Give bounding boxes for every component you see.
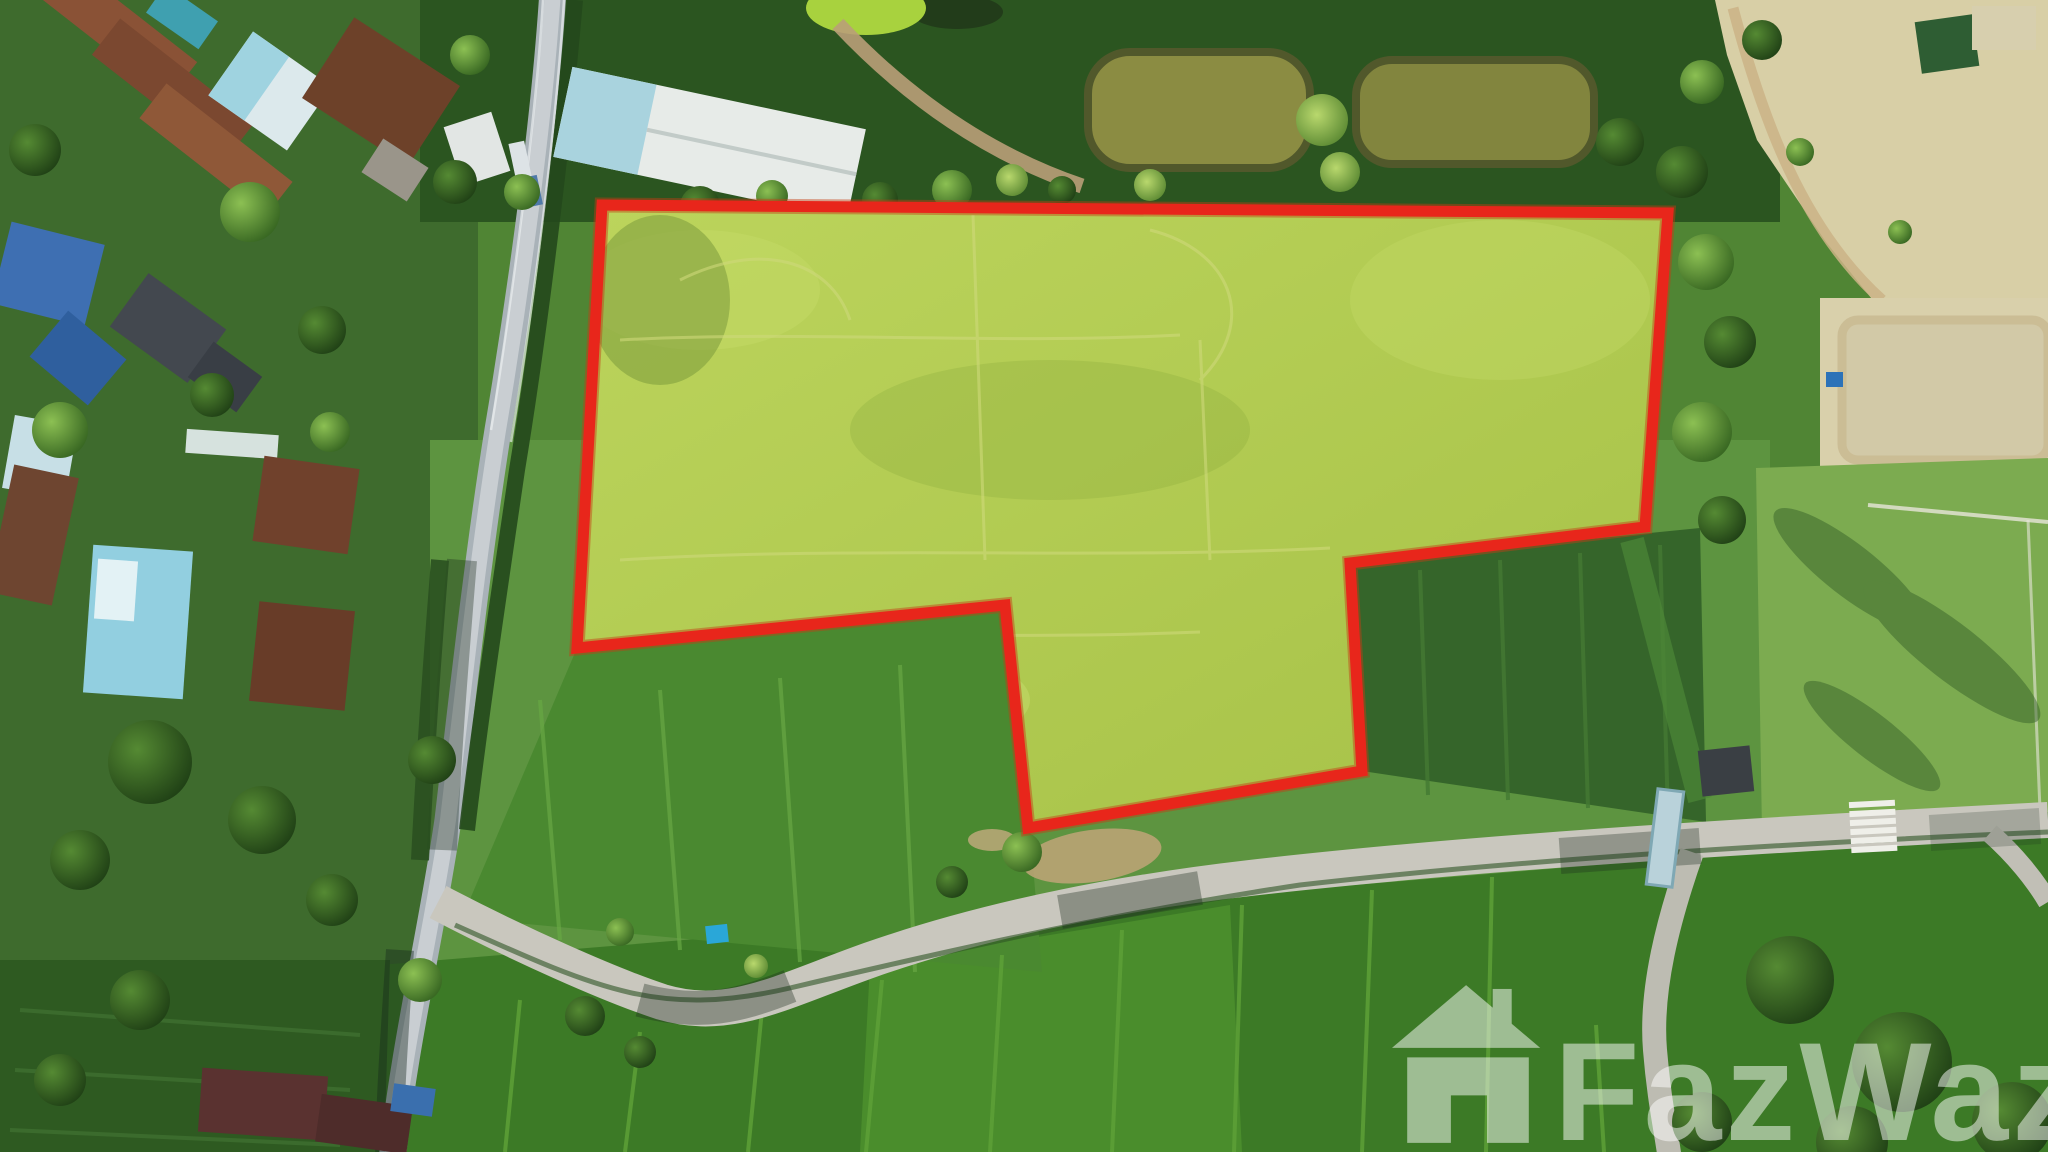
- tree: [1596, 118, 1644, 166]
- blue-tarp: [390, 1083, 435, 1117]
- tree: [1002, 832, 1042, 872]
- tree: [190, 373, 234, 417]
- tree: [1672, 1092, 1732, 1152]
- tree: [32, 402, 88, 458]
- tree: [1672, 402, 1732, 462]
- blue-tarp: [1826, 372, 1843, 387]
- aerial-photo: FazWaz: [0, 0, 2048, 1152]
- tree: [744, 954, 768, 978]
- tree: [606, 918, 634, 946]
- tree: [1698, 496, 1746, 544]
- tree: [408, 736, 456, 784]
- tree: [9, 124, 61, 176]
- roof: [252, 456, 359, 555]
- tree: [1746, 936, 1834, 1024]
- tree: [220, 182, 280, 242]
- tree: [1704, 316, 1756, 368]
- tree: [936, 866, 968, 898]
- tree: [565, 996, 605, 1036]
- tree: [1852, 1012, 1952, 1112]
- palm-tree: [1296, 94, 1348, 146]
- tree: [50, 830, 110, 890]
- tree: [1656, 146, 1708, 198]
- tree: [398, 958, 442, 1002]
- tree: [108, 720, 192, 804]
- olive-pond-left: [1088, 52, 1310, 168]
- tree: [34, 1054, 86, 1106]
- palm-tree: [1320, 152, 1360, 192]
- palm-tree: [996, 164, 1028, 196]
- tree: [228, 786, 296, 854]
- tree: [306, 874, 358, 926]
- tree: [1048, 176, 1076, 204]
- tree: [1742, 20, 1782, 60]
- deck: [1972, 6, 2036, 50]
- tree: [450, 35, 490, 75]
- tree: [624, 1036, 656, 1068]
- hut-roof: [1698, 745, 1755, 796]
- cyan-roof-highlight: [94, 559, 138, 622]
- palm-tree: [1134, 169, 1166, 201]
- roof: [198, 1068, 328, 1141]
- tree: [310, 412, 350, 452]
- tree: [433, 160, 477, 204]
- shrub: [1786, 138, 1814, 166]
- tree: [1680, 60, 1724, 104]
- blue-sign: [705, 924, 729, 944]
- tree: [110, 970, 170, 1030]
- olive-pond-right: [1356, 60, 1594, 164]
- green-roof: [1915, 14, 1980, 74]
- roof: [249, 601, 355, 710]
- milky-pond: [1842, 320, 2048, 460]
- tree: [1678, 234, 1734, 290]
- tree: [504, 174, 540, 210]
- tree: [298, 306, 346, 354]
- shrub: [1888, 220, 1912, 244]
